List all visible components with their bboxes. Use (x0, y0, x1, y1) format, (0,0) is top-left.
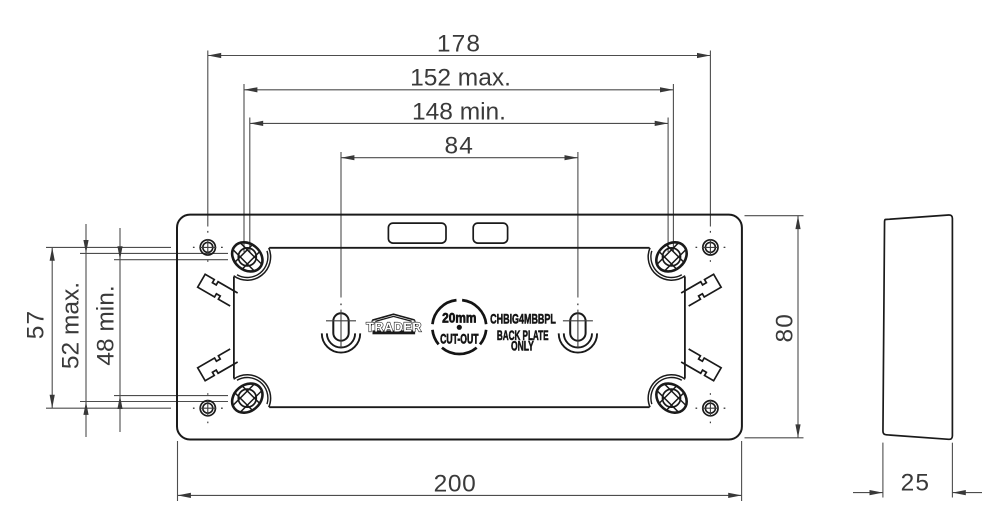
svg-text:TRADER: TRADER (366, 320, 422, 334)
svg-text:CHBIG4MBBPL: CHBIG4MBBPL (490, 311, 556, 326)
svg-text:57: 57 (22, 310, 49, 339)
svg-text:48 min.: 48 min. (93, 285, 120, 365)
svg-text:84: 84 (444, 132, 473, 159)
svg-text:80: 80 (772, 313, 799, 342)
svg-text:148 min.: 148 min. (412, 98, 506, 125)
svg-text:52 max.: 52 max. (58, 282, 85, 369)
svg-text:CUT-OUT: CUT-OUT (440, 333, 478, 347)
svg-text:152 max.: 152 max. (410, 65, 511, 92)
svg-text:200: 200 (434, 470, 477, 497)
svg-text:178: 178 (437, 30, 481, 57)
svg-text:ONLY: ONLY (511, 340, 534, 354)
svg-text:25: 25 (901, 469, 930, 496)
svg-text:20mm: 20mm (442, 310, 476, 326)
